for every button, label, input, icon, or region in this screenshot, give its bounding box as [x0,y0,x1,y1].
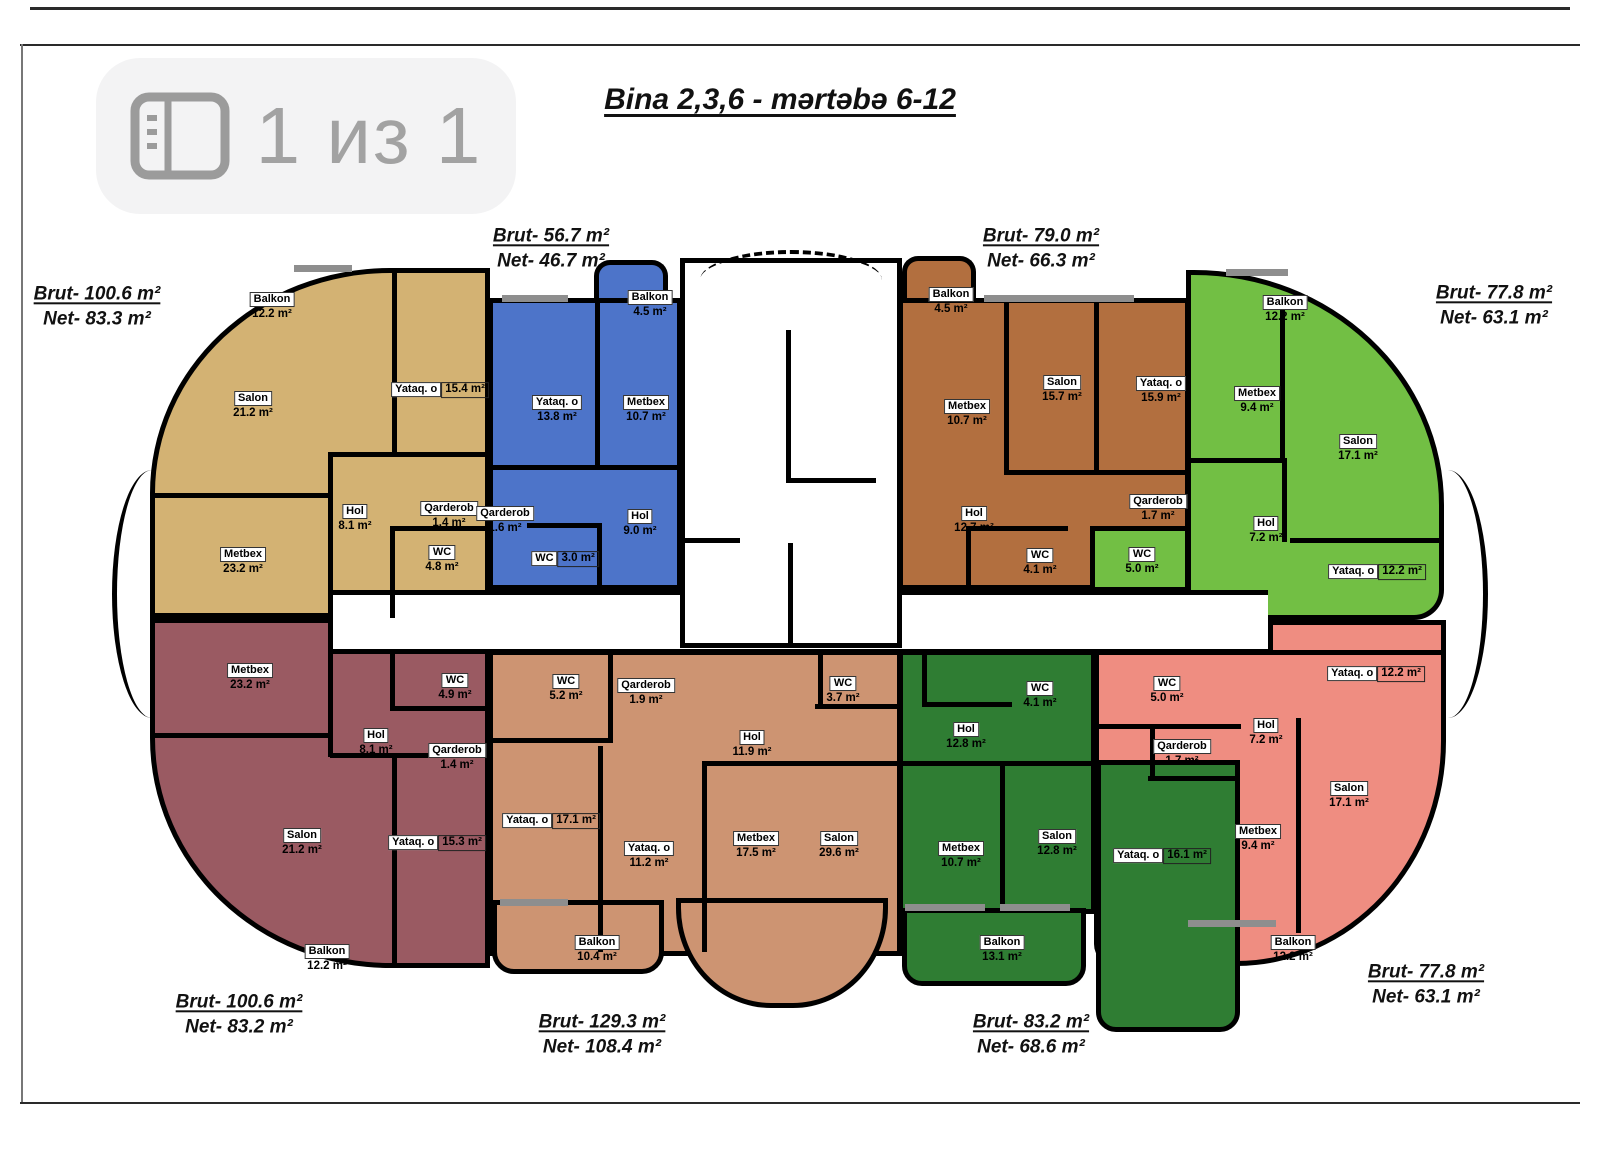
room-label: Hol8.1 m² [359,724,392,758]
page-indicator[interactable]: 1 из 1 [96,58,516,214]
interior-wall [150,493,332,498]
apartment-area-annotation: Brut- 77.8 m²Net- 63.1 m² [1368,960,1484,1009]
room-label: Metbex10.7 m² [944,395,990,429]
room-label: Metbex10.7 m² [623,391,669,425]
room-label: Salon17.1 m² [1338,430,1378,464]
room-label: WC5.0 m² [1150,672,1183,706]
interior-wall [390,706,490,711]
interior-wall [330,452,490,457]
interior-wall [1148,776,1240,781]
room-label: Metbex9.4 m² [1234,382,1280,416]
room-label: Hol7.2 m² [1249,714,1282,748]
room-label: Yataq. o13.8 m² [532,391,582,425]
core-wall [786,478,876,483]
window-sill [500,899,568,906]
interior-wall [1096,724,1241,729]
interior-wall [392,756,397,963]
room-label: Yataq. o12.2 m² [1327,662,1425,682]
window-sill [1000,904,1070,911]
interior-wall [922,652,927,706]
room-label: WC5.0 m² [1125,543,1158,577]
room-label: Salon29.6 m² [819,827,859,861]
page-indicator-text: 1 из 1 [256,90,483,182]
room-label: Salon12.8 m² [1037,825,1077,859]
core-terrace-arc [700,250,882,310]
apartment-area-annotation: Brut- 79.0 m²Net- 66.3 m² [983,224,1099,273]
room-label: WC3.0 m² [531,547,599,567]
window-sill [294,265,352,272]
page-border-line-upper [20,44,1580,46]
plan-title: Bina 2,3,6 - mərtəbə 6-12 [604,83,956,117]
page-border-line-top [30,7,1570,10]
room-label: Yataq. o12.2 m² [1328,560,1426,580]
room-label: Hol9.0 m² [623,505,656,539]
apartment-area-annotation: Brut- 129.3 m²Net- 108.4 m² [539,1010,666,1059]
interior-wall [1290,538,1442,543]
room-label: WC5.2 m² [549,670,582,704]
room-label: WC4.8 m² [425,541,458,575]
room-label: Yataq. o15.9 m² [1136,372,1186,406]
room-label: Balkon12.2 m² [305,940,350,974]
interior-wall [492,465,680,470]
interior-wall [390,526,395,618]
room-label: Salon17.1 m² [1329,777,1369,811]
apartment-bottom-mid-right-area [898,650,1096,914]
interior-wall [492,738,610,743]
interior-wall [390,652,395,710]
interior-wall [1190,458,1283,463]
interior-wall [702,763,707,952]
interior-wall [1296,718,1301,933]
apartment-area-annotation: Brut- 56.7 m²Net- 46.7 m² [493,224,609,273]
room-label: Balkon12.2 m² [250,288,295,322]
room-label: Metbex23.2 m² [227,659,273,693]
left-facade-arc [112,470,154,718]
room-label: Yataq. o11.2 m² [624,837,674,871]
interior-wall [527,523,602,528]
interior-wall [818,653,823,709]
interior-wall [922,702,1012,707]
room-label: Hol11.9 m² [733,726,772,760]
room-label: WC4.9 m² [438,669,471,703]
interior-wall [1094,302,1099,472]
page-border-line-left [21,44,23,1102]
window-sill [905,904,985,911]
room-label: WC3.7 m² [826,672,859,706]
interior-wall [328,452,333,618]
apartment-area-annotation: Brut- 77.8 m²Net- 63.1 m² [1436,281,1552,330]
room-label: Salon21.2 m² [233,387,273,421]
page-border-line-bottom [20,1102,1580,1104]
apartment-bottom-mid-right-bedroom-area [1096,760,1240,1032]
core-wall [788,543,793,643]
room-label: WC4.1 m² [1023,544,1056,578]
room-label: Yataq. o17.1 m² [502,809,600,829]
room-label: Qarderob1.4 m² [420,497,478,531]
interior-wall [702,761,902,766]
interior-wall [1004,302,1009,475]
interior-wall [598,746,603,952]
room-label: Salon21.2 m² [282,824,322,858]
room-label: Salon15.7 m² [1042,371,1082,405]
interior-wall [1004,470,1188,475]
photo-viewer-page: 1 из 1 Bina 2,3,6 - mərtəbə 6-12 [0,0,1600,1150]
room-label: Qarderob1.4 m² [428,739,486,773]
window-sill [502,295,568,302]
interior-wall [1000,763,1005,912]
room-label: Qarderob1.9 m² [617,674,675,708]
apartment-bottom-mid-left-lobe [676,898,888,1008]
interior-wall [150,733,332,738]
room-label: Metbex9.4 m² [1235,820,1281,854]
room-label: Yataq. o15.4 m² [391,378,489,398]
window-sill [1188,920,1276,927]
room-label: Balkon4.5 m² [628,286,673,320]
core-wall [682,538,740,543]
room-label: Balkon10.4 m² [575,931,620,965]
interior-wall [392,272,397,455]
right-facade-arc [1446,470,1488,718]
core-wall [786,330,791,482]
room-label: Balkon13.1 m² [980,931,1025,965]
gallery-icon [130,92,230,180]
room-label: WC4.1 m² [1023,677,1056,711]
apartment-area-annotation: Brut- 100.6 m²Net- 83.2 m² [176,990,303,1039]
room-label: Hol7.2 m² [1249,512,1282,546]
apartment-area-annotation: Brut- 100.6 m²Net- 83.3 m² [34,282,161,331]
interior-wall [1282,458,1287,542]
apartment-area-annotation: Brut- 83.2 m²Net- 68.6 m² [973,1010,1089,1059]
room-label: Qarderob1.6 m² [476,502,534,536]
window-sill [984,295,1134,302]
room-label: Hol8.1 m² [338,500,371,534]
room-label: Hol12.7 m² [954,502,994,536]
room-label: Qarderob1.7 m² [1129,490,1187,524]
interior-wall [595,302,600,467]
room-label: Yataq. o16.1 m² [1113,844,1211,864]
window-sill [1226,269,1288,276]
interior-wall [608,653,613,743]
room-label: Balkon12.2 m² [1263,291,1308,325]
room-label: Metbex17.5 m² [733,827,779,861]
room-label: Yataq. o15.3 m² [388,831,486,851]
room-label: Balkon12.2 m² [1271,931,1316,965]
room-label: Qarderob1.7 m² [1153,735,1211,769]
room-label: Metbex10.7 m² [938,837,984,871]
room-label: Hol12.8 m² [946,718,986,752]
room-label: Metbex23.2 m² [220,543,266,577]
interior-wall [898,761,1094,766]
room-label: Balkon4.5 m² [929,283,974,317]
